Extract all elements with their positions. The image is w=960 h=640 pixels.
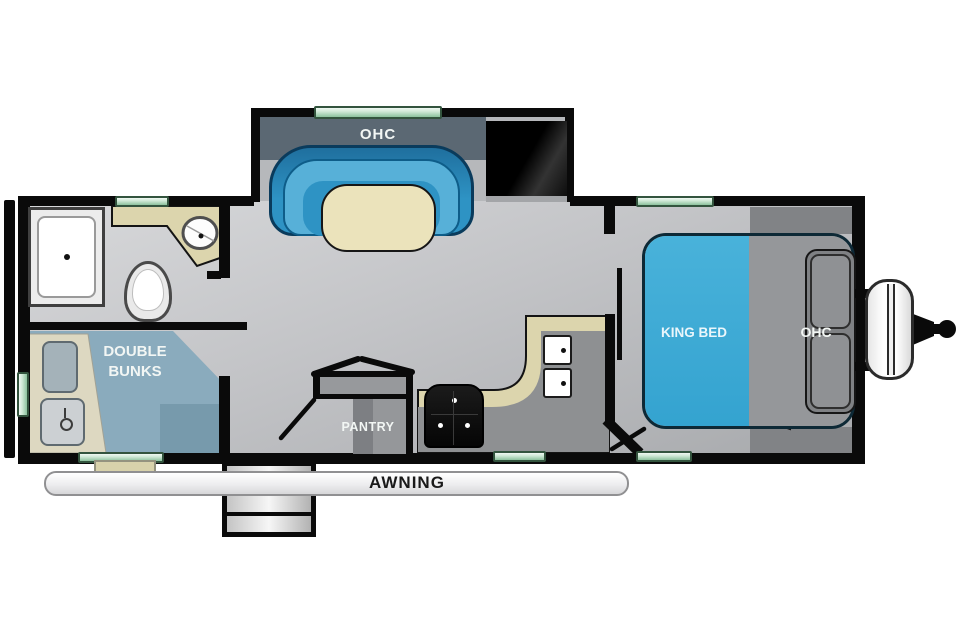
- bedroom-lower-wall: [605, 314, 615, 422]
- pantry-wall-top: [313, 371, 413, 377]
- kitchen-bottom-window: [493, 451, 546, 462]
- slideout-ohc-label: OHC: [340, 126, 416, 143]
- exterior-sink-cabinet: [40, 398, 85, 446]
- propane-tanks: [865, 279, 914, 380]
- tv-cabinet: [486, 121, 567, 198]
- faucet-stem: [64, 408, 66, 418]
- pantry-wall-right: [406, 371, 413, 457]
- headboard-cushion-top: [810, 254, 851, 329]
- awning-label: AWNING: [352, 473, 462, 493]
- kitchen-sink-1: [543, 335, 572, 365]
- hitch-coupler: [938, 320, 956, 338]
- bedroom-bottom-window: [636, 451, 692, 462]
- pantry-shelf: [313, 377, 413, 394]
- pantry-label: PANTRY: [331, 420, 405, 434]
- dinette-table: [321, 184, 436, 252]
- awning-bar: [44, 471, 629, 496]
- king-bed-label: KING BED: [644, 325, 744, 340]
- bathroom-wall: [219, 202, 230, 278]
- bathroom-wall-foot: [207, 271, 221, 279]
- slideout-wall-left: [251, 108, 260, 202]
- toilet-seat: [132, 269, 164, 311]
- rear-bumper: [4, 200, 15, 458]
- lower-bunk-shade: [160, 404, 222, 453]
- top-wall-right: [570, 196, 865, 206]
- bathroom-window: [115, 196, 169, 207]
- bunk-cabinet-upper: [42, 341, 78, 393]
- faucet-icon: [60, 418, 73, 431]
- bedroom-sliding-door: [617, 268, 622, 360]
- rv-floorplan: OHC DOUBLE BUNKS PANTRY KING BED OHC AWN…: [0, 0, 960, 640]
- bed-ohc-label: OHC: [792, 324, 840, 340]
- bedroom-top-window: [636, 196, 714, 207]
- kitchen-sink-2: [543, 368, 572, 398]
- bunkroom-top-wall: [18, 322, 247, 330]
- slideout-window: [314, 106, 442, 119]
- headboard-cushion-bottom: [810, 333, 851, 409]
- entry-door-swing: [281, 400, 314, 438]
- shower-drain: [64, 254, 70, 260]
- double-bunks-label: DOUBLE BUNKS: [83, 342, 187, 382]
- bunkroom-side-window: [17, 372, 29, 417]
- pantry-wall-left: [313, 371, 320, 399]
- bedroom-wall-stub: [604, 206, 615, 234]
- stove: [424, 384, 484, 448]
- tv-shelf: [486, 196, 567, 202]
- bunkroom-right-wall: [219, 376, 230, 456]
